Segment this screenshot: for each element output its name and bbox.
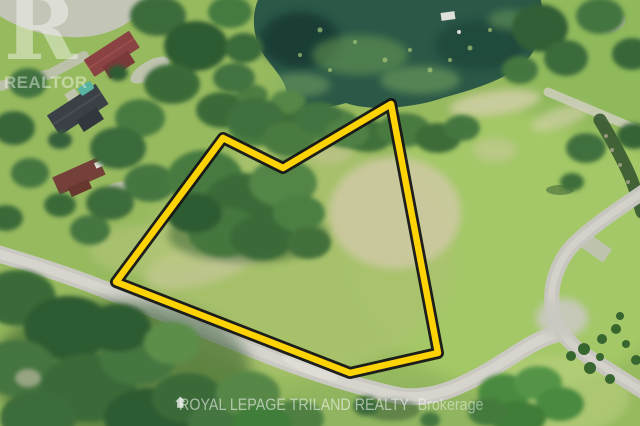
road-junction bbox=[536, 298, 588, 338]
brokerage-company: ROYAL LEPAGE TRILAND REALTY bbox=[179, 395, 409, 415]
aerial-scene bbox=[0, 0, 640, 426]
listing-aerial-photo: R REALTOR ROYAL LEPAGE TRILAND REALTY Br… bbox=[0, 0, 640, 426]
brokerage-suffix: Brokerage bbox=[418, 395, 484, 415]
brokerage-watermark: ROYAL LEPAGE TRILAND REALTY Brokerage bbox=[174, 395, 483, 415]
